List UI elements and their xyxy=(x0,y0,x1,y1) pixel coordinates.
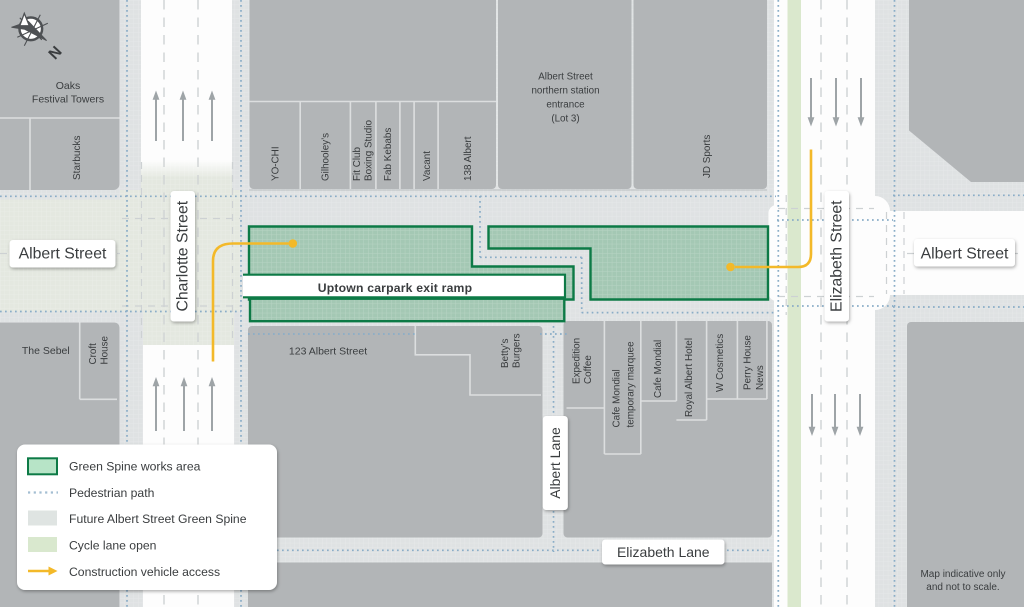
svg-text:Elizabeth Lane: Elizabeth Lane xyxy=(617,544,710,560)
svg-text:Perry House: Perry House xyxy=(743,335,754,390)
svg-text:House: House xyxy=(100,335,111,364)
svg-text:Elizabeth Street: Elizabeth Street xyxy=(828,200,845,312)
svg-text:Albert Street: Albert Street xyxy=(921,245,1009,262)
svg-text:Cycle lane open: Cycle lane open xyxy=(69,539,156,553)
svg-text:Starbucks: Starbucks xyxy=(72,136,83,180)
svg-text:and not to scale.: and not to scale. xyxy=(926,582,999,593)
svg-text:Croft: Croft xyxy=(88,343,99,365)
svg-text:Coffee: Coffee xyxy=(583,355,594,384)
svg-text:Festival Towers: Festival Towers xyxy=(32,94,104,106)
svg-text:Construction vehicle access: Construction vehicle access xyxy=(69,565,220,579)
svg-text:Uptown carpark exit ramp: Uptown carpark exit ramp xyxy=(318,281,472,295)
svg-text:northern station: northern station xyxy=(531,86,599,97)
svg-text:entrance: entrance xyxy=(546,100,585,111)
svg-text:(Lot 3): (Lot 3) xyxy=(551,114,579,125)
svg-text:Map indicative only: Map indicative only xyxy=(920,569,1005,580)
svg-text:Gilhooley’s: Gilhooley’s xyxy=(321,133,332,181)
svg-text:Albert Street: Albert Street xyxy=(538,72,593,83)
svg-text:Fit Club: Fit Club xyxy=(352,146,363,181)
svg-text:Future Albert Street Green Spi: Future Albert Street Green Spine xyxy=(69,512,247,526)
svg-text:Charlotte Street: Charlotte Street xyxy=(174,200,191,311)
svg-text:News: News xyxy=(755,365,766,390)
svg-text:JD Sports: JD Sports xyxy=(702,135,713,178)
svg-text:Vacant: Vacant xyxy=(422,151,433,181)
svg-text:Pedestrian path: Pedestrian path xyxy=(69,486,154,500)
svg-text:123 Albert Street: 123 Albert Street xyxy=(289,346,367,358)
svg-text:Oaks: Oaks xyxy=(56,80,81,92)
svg-text:Albert Lane: Albert Lane xyxy=(547,427,563,499)
svg-text:Betty’s: Betty’s xyxy=(500,338,511,368)
svg-text:W Cosmetics: W Cosmetics xyxy=(715,334,726,392)
svg-text:Fab Kebabs: Fab Kebabs xyxy=(383,128,394,181)
svg-text:Albert Street: Albert Street xyxy=(19,246,107,263)
svg-text:138 Albert: 138 Albert xyxy=(463,136,474,181)
svg-text:Expedition: Expedition xyxy=(572,338,583,384)
svg-text:temporary marquee: temporary marquee xyxy=(626,341,637,428)
svg-text:The Sebel: The Sebel xyxy=(22,345,70,357)
svg-text:Cafe Mondial: Cafe Mondial xyxy=(612,369,623,427)
svg-text:Cafe Mondial: Cafe Mondial xyxy=(653,340,664,398)
svg-text:Burgers: Burgers xyxy=(512,333,523,368)
svg-text:Boxing Studio: Boxing Studio xyxy=(364,120,375,181)
svg-text:Green Spine works area: Green Spine works area xyxy=(69,460,201,474)
svg-text:YO-CHI: YO-CHI xyxy=(271,146,282,181)
svg-text:Royal Albert Hotel: Royal Albert Hotel xyxy=(684,338,695,417)
